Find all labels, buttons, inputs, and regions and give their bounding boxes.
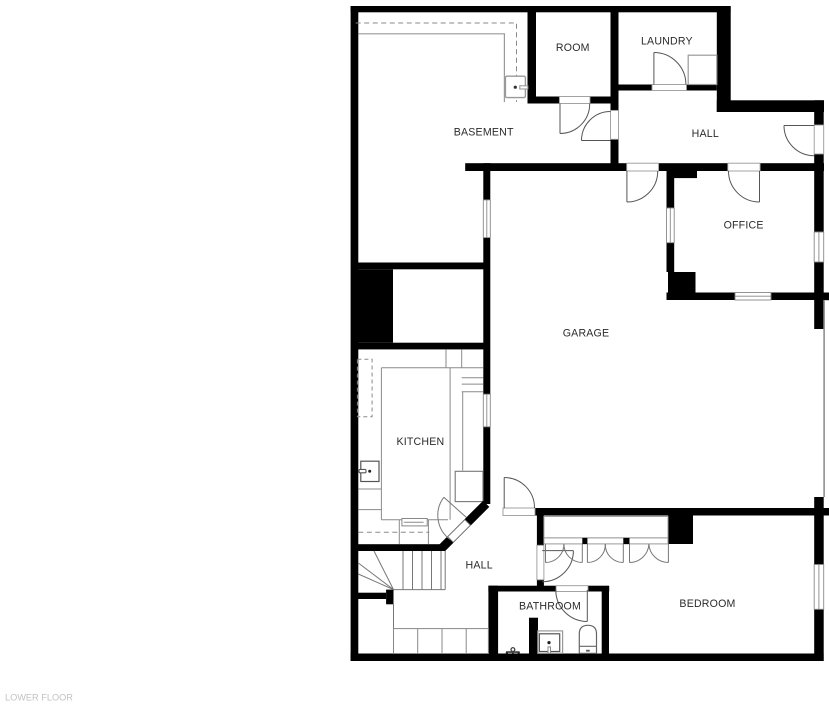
svg-text:HALL: HALL <box>466 559 493 571</box>
svg-text:ROOM: ROOM <box>556 42 590 54</box>
svg-text:BATHROOM: BATHROOM <box>519 601 581 613</box>
svg-text:KITCHEN: KITCHEN <box>396 436 444 448</box>
svg-text:GARAGE: GARAGE <box>563 327 610 339</box>
svg-text:BEDROOM: BEDROOM <box>679 598 735 610</box>
svg-text:OFFICE: OFFICE <box>724 220 764 232</box>
svg-text:LOWER FLOOR: LOWER FLOOR <box>5 693 73 703</box>
svg-text:BASEMENT: BASEMENT <box>454 126 514 138</box>
svg-text:LAUNDRY: LAUNDRY <box>641 36 693 48</box>
svg-text:HALL: HALL <box>692 128 719 140</box>
